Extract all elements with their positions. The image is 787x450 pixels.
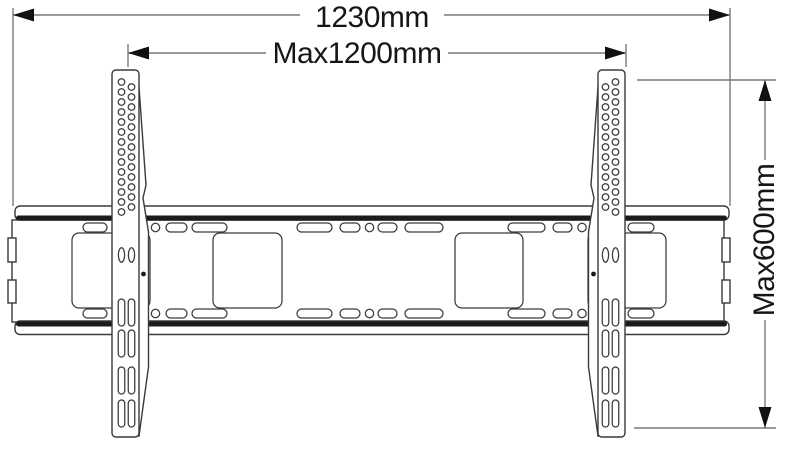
rail-slot-hole [166, 223, 187, 232]
rail-slot-hole [553, 223, 572, 232]
left-vesa-arm [112, 70, 149, 437]
arm-adjust-hole [612, 209, 619, 216]
rail-slot-hole [297, 223, 332, 232]
arm-oval-hole [128, 248, 134, 262]
arm-adjust-hole [128, 124, 135, 131]
arm-adjust-hole [612, 149, 619, 156]
arm-adjust-hole [602, 174, 609, 181]
rail-slot-hole [405, 223, 443, 232]
arm-vesa-slot [602, 400, 609, 427]
wall-plate-large-hole-3 [455, 233, 523, 308]
arm-adjust-hole [612, 139, 619, 146]
arm-adjust-hole [128, 204, 135, 211]
wall-plate-large-hole-2 [213, 233, 282, 308]
arm-vesa-slot [602, 299, 609, 326]
arm-adjust-hole [602, 164, 609, 171]
arm-adjust-hole [128, 134, 135, 141]
arm-vesa-slot [118, 400, 125, 427]
arm-adjust-hole [128, 104, 135, 111]
total-width-label: 1230mm [315, 1, 429, 34]
arm-vesa-slot [612, 299, 619, 326]
arm-adjust-hole [128, 144, 135, 151]
arm-adjust-hole [118, 89, 125, 96]
arm-adjust-hole [612, 89, 619, 96]
arrow-up-icon [759, 80, 772, 101]
arm-vesa-slot [612, 330, 619, 357]
rail-slot-hole [83, 223, 107, 232]
arrow-down-icon [759, 407, 772, 428]
arm-vesa-slot [602, 330, 609, 357]
arm-adjust-hole [118, 199, 125, 206]
wall-plate-right-tab-upper [722, 238, 730, 262]
arm-adjust-hole [118, 159, 125, 166]
arm-adjust-hole [612, 99, 619, 106]
arm-adjust-hole [128, 164, 135, 171]
arm-adjust-hole [612, 119, 619, 126]
arrow-left-icon [128, 47, 149, 60]
arm-adjust-hole [128, 174, 135, 181]
arm-oval-hole [602, 248, 608, 262]
rail-round-hole [365, 223, 373, 231]
right-vesa-arm [589, 70, 626, 437]
arm-adjust-hole [128, 194, 135, 201]
dimension-max-width: Max1200mm [128, 37, 626, 70]
rail-slot-hole [378, 309, 397, 318]
arm-pivot-dot [141, 272, 146, 277]
arm-adjust-hole [118, 149, 125, 156]
arm-adjust-hole [612, 109, 619, 116]
rail-slot-hole [628, 223, 654, 232]
arm-adjust-hole [602, 124, 609, 131]
arrow-right-icon [605, 47, 626, 60]
arm-adjust-hole [118, 209, 125, 216]
arm-pivot-dot [591, 272, 596, 277]
arm-adjust-hole [128, 94, 135, 101]
arm-adjust-hole [128, 154, 135, 161]
wall-plate-left-tab-lower [8, 280, 16, 303]
arm-adjust-hole [602, 114, 609, 121]
wall-plate-right-tab-lower [722, 280, 730, 303]
arm-vesa-slot [128, 367, 135, 394]
arm-adjust-hole [602, 94, 609, 101]
rail-slot-hole [192, 223, 227, 232]
max-width-label: Max1200mm [273, 37, 442, 70]
arrow-left-icon [13, 9, 34, 22]
arm-adjust-hole [602, 144, 609, 151]
rail-slot-hole [378, 223, 397, 232]
rail-slot-hole [83, 309, 107, 318]
arm-adjust-hole [612, 179, 619, 186]
dimension-diagram: 1230mm Max1200mm Max600mm [0, 0, 787, 450]
arm-adjust-hole [602, 134, 609, 141]
diagram-canvas: 1230mm Max1200mm Max600mm [0, 0, 787, 450]
arm-vesa-slot [118, 299, 125, 326]
arm-vesa-slot [118, 330, 125, 357]
rail-slot-hole [508, 309, 545, 318]
arm-adjust-hole [612, 129, 619, 136]
arm-adjust-hole [118, 79, 125, 86]
arm-adjust-hole [602, 204, 609, 211]
arm-adjust-hole [612, 169, 619, 176]
rail-slot-hole [628, 309, 654, 318]
arm-adjust-hole [602, 154, 609, 161]
rail-round-hole [151, 223, 159, 231]
wall-plate-left-tab-upper [8, 238, 16, 262]
arm-adjust-hole [128, 84, 135, 91]
arm-oval-hole [118, 248, 124, 262]
arm-adjust-hole [612, 189, 619, 196]
arm-adjust-hole [602, 194, 609, 201]
arrow-right-icon [709, 9, 730, 22]
arm-adjust-hole [612, 159, 619, 166]
rail-slot-hole [166, 309, 187, 318]
arm-adjust-hole [602, 104, 609, 111]
rail-slot-hole [508, 223, 545, 232]
arm-vesa-slot [118, 367, 125, 394]
arm-vesa-slot [602, 367, 609, 394]
arm-vesa-slot [612, 400, 619, 427]
arm-adjust-hole [602, 84, 609, 91]
rail-round-hole [578, 223, 586, 231]
rail-slot-hole [340, 309, 360, 318]
rail-slot-hole [192, 309, 227, 318]
arm-vesa-slot [128, 330, 135, 357]
arm-adjust-hole [118, 129, 125, 136]
arm-adjust-hole [128, 114, 135, 121]
rail-slot-hole [340, 223, 360, 232]
arm-vesa-slot [128, 299, 135, 326]
arm-adjust-hole [118, 139, 125, 146]
max-height-label: Max600mm [748, 164, 781, 317]
arm-adjust-hole [118, 119, 125, 126]
rail-round-hole [365, 309, 373, 317]
arm-adjust-hole [118, 109, 125, 116]
arm-adjust-hole [118, 179, 125, 186]
arm-adjust-hole [128, 184, 135, 191]
rail-round-hole [578, 309, 586, 317]
rail-slot-hole [405, 309, 443, 318]
rail-slot-hole [553, 309, 572, 318]
arm-oval-hole [612, 248, 618, 262]
rail-round-hole [151, 309, 159, 317]
arm-vesa-slot [128, 400, 135, 427]
arm-adjust-hole [118, 99, 125, 106]
rail-slot-hole [297, 309, 332, 318]
arm-adjust-hole [602, 184, 609, 191]
arm-vesa-slot [612, 367, 619, 394]
arm-adjust-hole [612, 79, 619, 86]
arm-adjust-hole [118, 169, 125, 176]
arm-adjust-hole [612, 199, 619, 206]
arm-adjust-hole [118, 189, 125, 196]
